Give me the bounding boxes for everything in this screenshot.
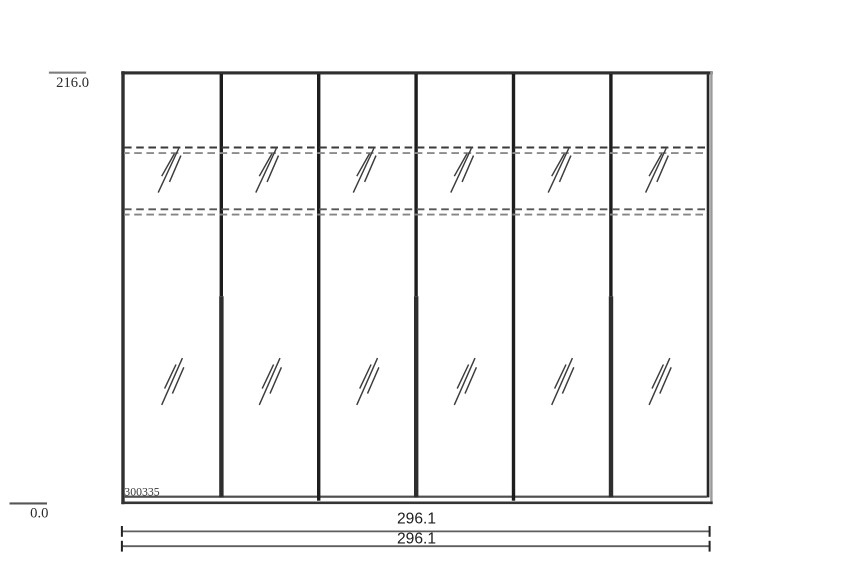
svg-text:300335: 300335 (124, 484, 159, 498)
svg-text:296.1: 296.1 (397, 531, 436, 548)
svg-text:296.1: 296.1 (397, 510, 436, 527)
svg-text:0.0: 0.0 (30, 506, 48, 522)
svg-text:216.0: 216.0 (56, 75, 89, 91)
